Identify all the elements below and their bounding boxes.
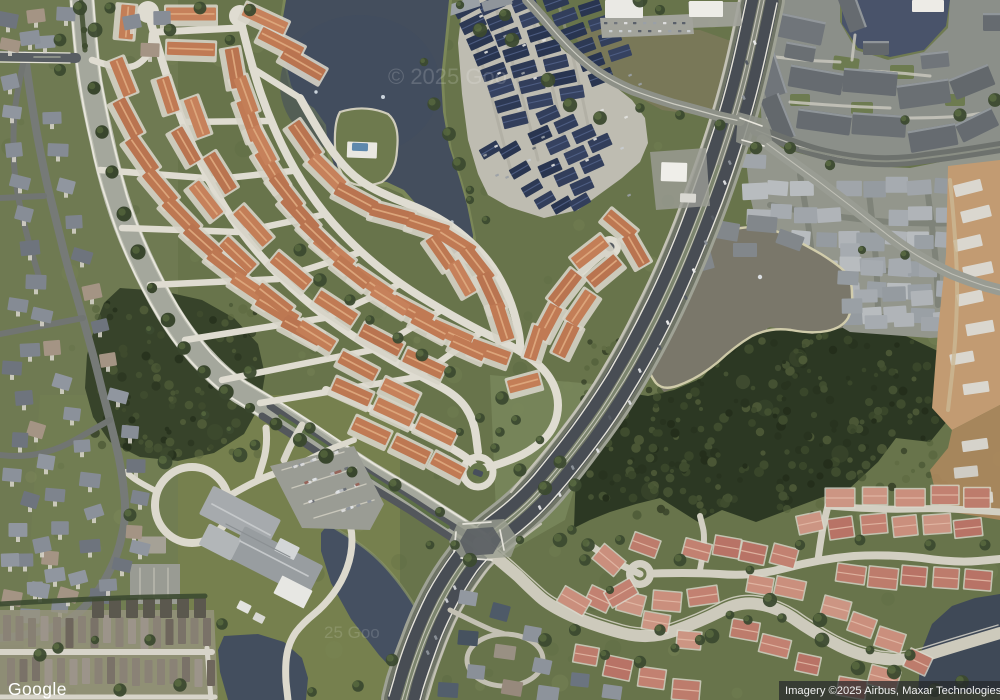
svg-text:Google: Google [8,679,67,699]
svg-text:25 Goo: 25 Goo [324,623,380,642]
svg-text:Imagery ©2025 Airbus, Maxar Te: Imagery ©2025 Airbus, Maxar Technologies [785,685,1000,697]
svg-text:© 2025 Goo: © 2025 Goo [388,64,507,89]
